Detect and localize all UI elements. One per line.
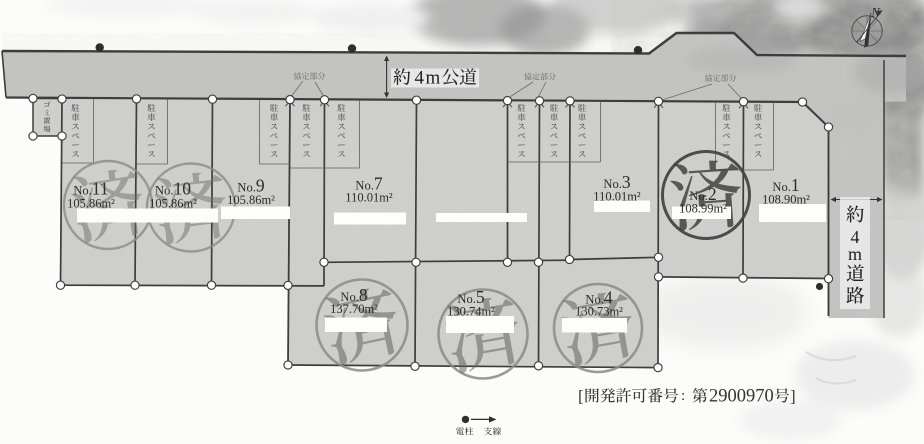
svg-text:110.01m²: 110.01m²: [345, 191, 393, 205]
svg-text:130.73m²: 130.73m²: [575, 305, 623, 319]
svg-text::: :: [681, 388, 685, 404]
svg-text:105.86m²: 105.86m²: [149, 197, 197, 211]
svg-text:105.86m²: 105.86m²: [227, 193, 275, 207]
svg-text:105.86m²: 105.86m²: [67, 197, 115, 211]
svg-text:137.70m²: 137.70m²: [330, 302, 378, 316]
svg-text:4m: 4m: [415, 68, 442, 89]
svg-text:108.99m²: 108.99m²: [679, 202, 727, 216]
svg-text:m: m: [848, 244, 862, 264]
svg-text:108.90m²: 108.90m²: [762, 193, 810, 207]
svg-text:]: ]: [790, 386, 796, 405]
svg-text:130.74m²: 130.74m²: [447, 305, 495, 319]
svg-text:N: N: [871, 6, 881, 20]
svg-text:[: [: [578, 386, 584, 405]
svg-text:110.01m²: 110.01m²: [593, 190, 641, 204]
svg-text:2900970: 2900970: [709, 386, 774, 406]
